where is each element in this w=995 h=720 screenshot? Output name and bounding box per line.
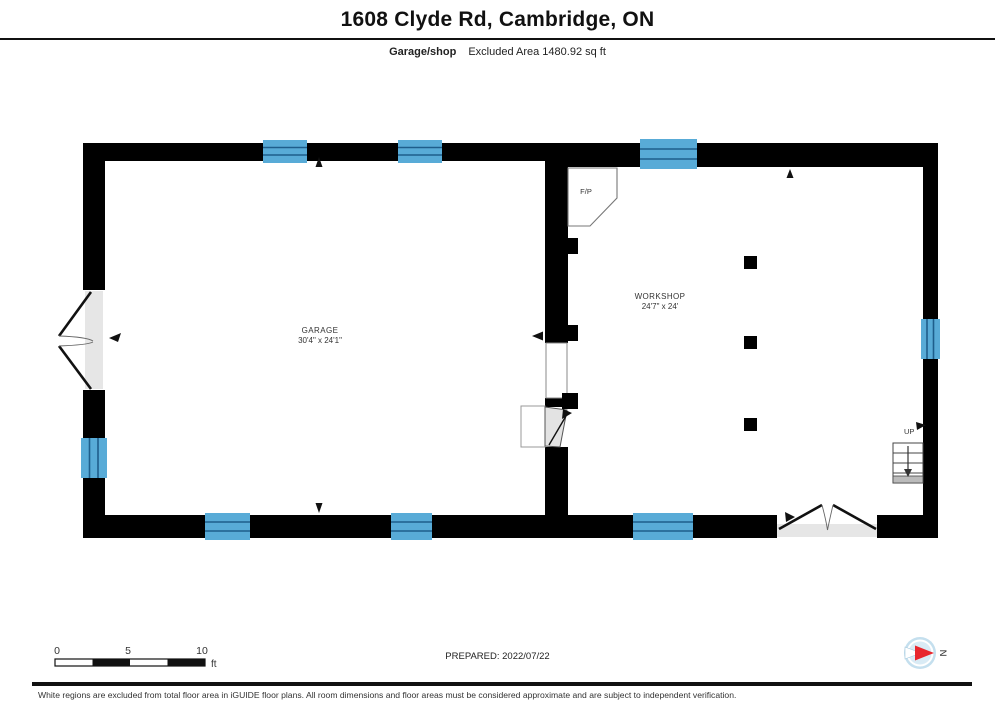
wall-segment — [697, 143, 938, 167]
fireplace: F/P — [568, 168, 617, 226]
wall-segment — [877, 515, 938, 538]
garage-double-door — [59, 291, 121, 389]
disclaimer-text: White regions are excluded from total fl… — [38, 690, 968, 700]
fireplace-label: F/P — [580, 187, 592, 196]
entry-arrow-icon — [316, 503, 323, 513]
garage-room-name: GARAGE — [302, 326, 339, 335]
wall-segment — [83, 390, 105, 438]
post — [562, 238, 578, 254]
wall-segment — [693, 515, 777, 538]
post — [744, 336, 757, 349]
wall-segment — [923, 359, 938, 538]
window — [205, 513, 250, 540]
wall-segment — [442, 143, 545, 161]
entry-arrow-icon — [787, 169, 794, 178]
interior-door — [521, 406, 572, 447]
workshop-room-name: WORKSHOP — [635, 292, 686, 301]
entry-arrow-icon — [109, 333, 121, 342]
floorplan-page: 1608 Clyde Rd, Cambridge, ON Garage/shop… — [0, 0, 995, 720]
floor-plan: F/P UP GARAG — [0, 0, 995, 720]
window — [263, 140, 307, 163]
wall-segment — [568, 143, 640, 167]
window — [391, 513, 432, 540]
workshop-room-dims: 24'7" x 24' — [642, 302, 679, 311]
window — [921, 319, 940, 359]
post — [744, 418, 757, 431]
post — [744, 256, 757, 269]
windows — [81, 139, 940, 540]
footer-divider — [32, 682, 972, 686]
window — [640, 139, 697, 169]
walls — [83, 143, 938, 538]
window — [398, 140, 442, 163]
wall-segment — [83, 143, 105, 290]
window — [81, 438, 107, 478]
wall-segment — [568, 515, 633, 538]
wall-segment — [250, 515, 391, 538]
post — [562, 393, 578, 409]
interior-opening — [546, 343, 567, 398]
wall-segment — [923, 143, 938, 319]
stairs-up-label: UP — [904, 427, 914, 436]
entry-arrow-icon — [532, 332, 543, 341]
garage-room-dims: 30'4" x 24'1" — [298, 336, 342, 345]
wall-segment — [432, 515, 545, 538]
window — [633, 513, 693, 540]
wall-segment — [307, 143, 398, 161]
prepared-date: PREPARED: 2022/07/22 — [0, 651, 995, 662]
room-labels: GARAGE 30'4" x 24'1" WORKSHOP 24'7" x 24… — [298, 292, 685, 345]
wall-segment — [83, 515, 205, 538]
workshop-double-door — [777, 505, 877, 537]
wall-segment — [545, 447, 568, 538]
posts — [562, 238, 757, 431]
stairs: UP — [893, 422, 926, 483]
post — [562, 325, 578, 341]
wall-segment — [83, 143, 263, 161]
